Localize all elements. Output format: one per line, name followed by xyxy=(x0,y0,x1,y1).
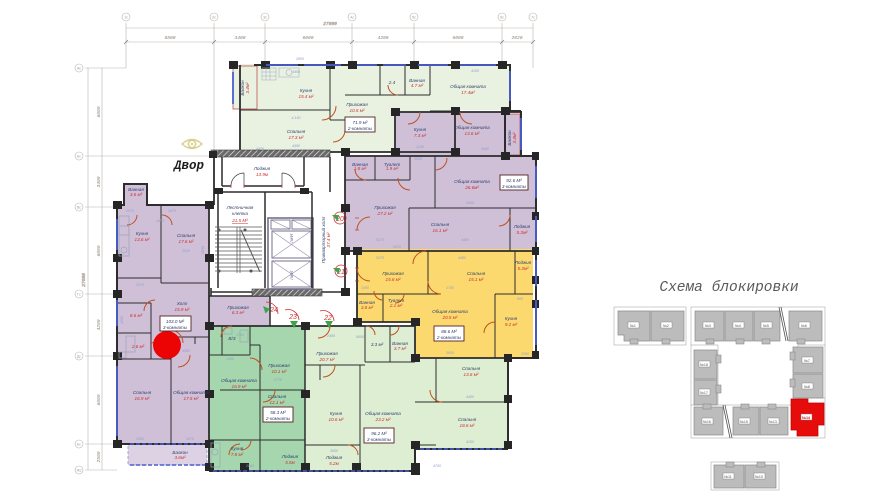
svg-text:15.9 м²: 15.9 м² xyxy=(175,307,190,312)
svg-text:16.1 м²: 16.1 м² xyxy=(433,228,448,233)
svg-text:600: 600 xyxy=(517,297,523,301)
svg-text:103.0 М²: 103.0 М² xyxy=(166,319,185,324)
svg-text:4150: 4150 xyxy=(466,440,474,444)
svg-text:2-комнаты: 2-комнаты xyxy=(436,335,462,340)
svg-text:4450: 4450 xyxy=(466,201,474,205)
svg-text:№14: №14 xyxy=(802,416,810,420)
svg-text:13.6 м²: 13.6 м² xyxy=(464,372,479,377)
svg-text:Общая комната: Общая комната xyxy=(365,411,401,416)
svg-text:92.6 М²: 92.6 М² xyxy=(506,178,522,183)
svg-text:17.3 м²: 17.3 м² xyxy=(289,135,304,140)
svg-text:4450: 4450 xyxy=(156,219,164,223)
svg-text:2800: 2800 xyxy=(295,57,304,61)
svg-text:4.150: 4.150 xyxy=(292,116,301,120)
svg-text:4700: 4700 xyxy=(433,464,441,468)
svg-text:№8: №8 xyxy=(804,385,810,389)
svg-text:21.5 М²: 21.5 М² xyxy=(231,218,248,223)
svg-text:Кухня: Кухня xyxy=(136,231,149,236)
svg-text:4480: 4480 xyxy=(458,256,466,260)
svg-text:13.6 м²: 13.6 м² xyxy=(465,131,480,136)
svg-text:Общая комната: Общая комната xyxy=(221,378,257,383)
svg-text:9.2 м²: 9.2 м² xyxy=(505,322,518,327)
svg-text:№13: №13 xyxy=(769,420,777,424)
svg-text:№10: №10 xyxy=(755,475,763,479)
svg-text:3.3 м²: 3.3 м² xyxy=(371,342,384,347)
svg-text:3-комнаты: 3-комнаты xyxy=(367,437,392,442)
svg-text:20.5 м²: 20.5 м² xyxy=(442,315,458,320)
svg-text:№18: №18 xyxy=(700,363,708,367)
svg-text:4450: 4450 xyxy=(481,147,489,151)
svg-text:27600: 27600 xyxy=(81,273,87,287)
svg-text:58.3 М²: 58.3 М² xyxy=(270,410,286,415)
svg-text:27.2 м²: 27.2 м² xyxy=(377,211,393,216)
svg-text:3.6 м²: 3.6 м² xyxy=(130,192,143,197)
svg-text:6000: 6000 xyxy=(96,106,102,117)
svg-text:2.6 м²: 2.6 м² xyxy=(131,344,145,349)
svg-text:3030: 3030 xyxy=(182,249,190,253)
svg-text:22: 22 xyxy=(323,315,332,322)
svg-text:4450: 4450 xyxy=(292,144,300,148)
svg-text:2360: 2360 xyxy=(520,352,529,356)
svg-text:96.2 М²: 96.2 М² xyxy=(371,431,387,436)
svg-text:Холл: Холл xyxy=(176,301,188,306)
svg-text:Лоджия: Лоджия xyxy=(325,455,343,460)
svg-text:3.6м²: 3.6м² xyxy=(174,455,186,460)
svg-text:3400: 3400 xyxy=(234,35,245,41)
svg-text:4450: 4450 xyxy=(256,147,264,151)
svg-text:Прихожая: Прихожая xyxy=(374,205,396,210)
svg-text:37.4 м²: 37.4 м² xyxy=(326,232,331,247)
svg-text:№1: №1 xyxy=(630,324,636,328)
svg-text:Кухня: Кухня xyxy=(505,316,518,321)
svg-text:6000: 6000 xyxy=(302,35,313,41)
svg-text:1с: 1с xyxy=(124,16,128,20)
svg-text:2.4: 2.4 xyxy=(388,80,396,85)
svg-text:26.6м²: 26.6м² xyxy=(464,185,479,190)
svg-text:2-комнаты: 2-комнаты xyxy=(347,126,373,131)
svg-text:4450: 4450 xyxy=(466,395,474,399)
svg-text:1460: 1460 xyxy=(226,357,234,361)
svg-text:3.7 м²: 3.7 м² xyxy=(394,346,407,351)
svg-text:Гс: Гс xyxy=(77,293,81,297)
svg-text:23: 23 xyxy=(288,314,297,321)
svg-text:Бс: Бс xyxy=(77,155,81,159)
svg-text:№3: №3 xyxy=(705,324,711,328)
svg-text:20.7 м²: 20.7 м² xyxy=(319,357,335,362)
svg-text:2.1 м²: 2.1 м² xyxy=(389,303,403,308)
svg-text:2499: 2499 xyxy=(326,334,335,338)
svg-text:4с: 4с xyxy=(350,16,354,20)
svg-text:№7: №7 xyxy=(804,359,810,363)
svg-text:2070: 2070 xyxy=(125,209,134,213)
svg-text:3400: 3400 xyxy=(96,176,102,187)
svg-text:Лоджия: Лоджия xyxy=(253,166,271,171)
svg-text:№4: №4 xyxy=(735,324,741,328)
svg-text:№15: №15 xyxy=(740,420,748,424)
svg-text:ЛИФТ: ЛИФТ xyxy=(290,269,294,279)
svg-text:3030: 3030 xyxy=(201,246,205,254)
svg-text:3650: 3650 xyxy=(446,351,454,355)
svg-text:Вс: Вс xyxy=(77,206,81,210)
svg-text:4450: 4450 xyxy=(292,70,300,74)
svg-text:15.1 м²: 15.1 м² xyxy=(469,277,484,282)
svg-text:4200: 4200 xyxy=(120,316,124,324)
svg-text:№11: №11 xyxy=(724,475,732,479)
svg-text:6800: 6800 xyxy=(164,35,175,41)
svg-text:Кухня: Кухня xyxy=(300,88,313,93)
svg-text:27600: 27600 xyxy=(323,21,337,27)
svg-text:4200: 4200 xyxy=(96,319,102,330)
svg-text:ЛИФТ: ЛИФТ xyxy=(290,232,294,242)
svg-text:88.6 М²: 88.6 М² xyxy=(441,329,457,334)
svg-text:Жс: Жс xyxy=(77,469,82,473)
svg-text:1100: 1100 xyxy=(416,145,424,149)
svg-text:15.6 м²: 15.6 м² xyxy=(386,277,401,282)
svg-text:Ес: Ес xyxy=(77,443,81,447)
svg-text:5370: 5370 xyxy=(393,245,401,249)
svg-text:5.5м: 5.5м xyxy=(285,460,295,465)
svg-text:2860: 2860 xyxy=(245,464,254,468)
svg-text:Схема блокировки: Схема блокировки xyxy=(659,279,799,296)
svg-text:Спальня: Спальня xyxy=(268,394,287,399)
svg-text:6000: 6000 xyxy=(96,245,102,256)
svg-text:Спальня: Спальня xyxy=(458,417,477,422)
svg-text:3280: 3280 xyxy=(136,437,144,441)
svg-text:Прихожая: Прихожая xyxy=(346,102,368,107)
svg-text:8.6 м²: 8.6 м² xyxy=(130,313,143,318)
svg-text:4450: 4450 xyxy=(182,349,190,353)
svg-text:6000: 6000 xyxy=(96,394,102,405)
svg-text:17.5 м²: 17.5 м² xyxy=(184,396,199,401)
svg-text:13.6 м²: 13.6 м² xyxy=(135,237,150,242)
svg-text:5.3м²: 5.3м² xyxy=(516,230,528,235)
svg-text:1780: 1780 xyxy=(446,286,454,290)
svg-text:6.3 м²: 6.3 м² xyxy=(232,310,245,315)
svg-text:24: 24 xyxy=(269,307,278,314)
svg-text:1350: 1350 xyxy=(361,286,369,290)
svg-text:Общая комната: Общая комната xyxy=(173,390,209,395)
svg-text:3.8 м²: 3.8 м² xyxy=(361,305,374,310)
svg-text:Лестничная: Лестничная xyxy=(226,205,254,210)
svg-text:Кухня: Кухня xyxy=(330,411,343,416)
svg-text:В/З: В/З xyxy=(228,336,235,341)
svg-text:5.2м: 5.2м xyxy=(329,461,339,466)
svg-text:Лоджия: Лоджия xyxy=(281,454,299,459)
svg-text:7.8 м²: 7.8 м² xyxy=(231,452,244,457)
svg-text:3475: 3475 xyxy=(168,209,176,213)
svg-text:№17: №17 xyxy=(700,391,708,395)
svg-text:10.5 м²: 10.5 м² xyxy=(350,108,365,113)
svg-text:3.4м²: 3.4м² xyxy=(245,82,250,94)
svg-text:7с: 7с xyxy=(531,16,535,20)
svg-text:23.2 м²: 23.2 м² xyxy=(375,417,391,422)
svg-text:3.4м²: 3.4м² xyxy=(512,132,517,144)
svg-text:3470: 3470 xyxy=(186,437,194,441)
svg-text:5370: 5370 xyxy=(376,238,384,242)
svg-text:Общая комната: Общая комната xyxy=(454,179,490,184)
svg-text:№2: №2 xyxy=(663,324,669,328)
svg-text:13.9м: 13.9м xyxy=(256,172,269,177)
svg-text:16.9 м²: 16.9 м² xyxy=(232,384,247,389)
svg-text:2500: 2500 xyxy=(96,451,102,462)
svg-text:Ас: Ас xyxy=(77,67,81,71)
svg-text:2-комнаты: 2-комнаты xyxy=(265,416,291,421)
svg-text:клетка: клетка xyxy=(232,211,248,216)
svg-text:Прихожая: Прихожая xyxy=(268,363,290,368)
svg-text:6с: 6с xyxy=(500,16,504,20)
svg-text:5.3м²: 5.3м² xyxy=(517,266,529,271)
svg-text:Прихожая: Прихожая xyxy=(382,271,404,276)
svg-text:12.1 м²: 12.1 м² xyxy=(270,400,285,405)
svg-text:18.6 м²: 18.6 м² xyxy=(460,423,475,428)
svg-text:Дс: Дс xyxy=(77,355,81,359)
svg-text:3-комнаты: 3-комнаты xyxy=(502,184,527,189)
svg-text:№16: №16 xyxy=(703,420,711,424)
svg-text:5370: 5370 xyxy=(376,256,384,260)
svg-text:3с: 3с xyxy=(263,16,267,20)
svg-text:Общая комната: Общая комната xyxy=(432,309,468,314)
svg-text:4480: 4480 xyxy=(461,238,469,242)
svg-text:Общая комната: Общая комната xyxy=(450,84,486,89)
svg-text:7.3 м²: 7.3 м² xyxy=(414,133,427,138)
svg-text:Прихожая: Прихожая xyxy=(316,351,338,356)
svg-text:15.4 м²: 15.4 м² xyxy=(299,94,314,99)
svg-text:4.7 м²: 4.7 м² xyxy=(411,83,424,88)
svg-text:Спальня: Спальня xyxy=(431,222,450,227)
svg-text:10.6 м²: 10.6 м² xyxy=(329,417,344,422)
svg-text:4200: 4200 xyxy=(377,35,388,41)
svg-text:Спальня: Спальня xyxy=(177,233,196,238)
svg-text:Спальня: Спальня xyxy=(462,366,481,371)
svg-text:5с: 5с xyxy=(412,16,416,20)
svg-text:Спальня: Спальня xyxy=(287,129,306,134)
svg-text:1700: 1700 xyxy=(236,333,244,337)
svg-text:17.4м²: 17.4м² xyxy=(461,90,475,95)
svg-text:Лоджия: Лоджия xyxy=(513,224,531,229)
svg-text:2020: 2020 xyxy=(511,35,522,41)
svg-text:2070: 2070 xyxy=(135,283,144,287)
svg-text:6000: 6000 xyxy=(452,35,463,41)
svg-text:Общая комната: Общая комната xyxy=(454,125,490,130)
svg-text:71.9 м²: 71.9 м² xyxy=(353,120,368,125)
svg-text:Кухня: Кухня xyxy=(231,446,244,451)
svg-text:1.8 м²: 1.8 м² xyxy=(354,166,367,171)
svg-text:Спальня: Спальня xyxy=(133,390,152,395)
svg-text:1.9 м²: 1.9 м² xyxy=(386,166,399,171)
svg-text:2770: 2770 xyxy=(273,378,282,382)
svg-text:Кухня: Кухня xyxy=(414,127,427,132)
svg-text:5050: 5050 xyxy=(414,157,422,161)
svg-text:№5: №5 xyxy=(763,324,769,328)
svg-text:Двор: Двор xyxy=(172,159,205,173)
svg-text:3650: 3650 xyxy=(330,449,338,453)
svg-text:3-комнаты: 3-комнаты xyxy=(163,325,188,330)
svg-text:16.9 м²: 16.9 м² xyxy=(135,396,150,401)
svg-text:Спальня: Спальня xyxy=(467,271,486,276)
svg-text:№6: №6 xyxy=(801,324,807,328)
svg-text:2с: 2с xyxy=(212,16,216,20)
svg-text:Лоджия: Лоджия xyxy=(514,260,532,265)
svg-text:10.1 м²: 10.1 м² xyxy=(272,369,287,374)
svg-text:5650: 5650 xyxy=(356,335,364,339)
svg-text:4150: 4150 xyxy=(471,69,479,73)
svg-text:17.6 м²: 17.6 м² xyxy=(179,239,194,244)
